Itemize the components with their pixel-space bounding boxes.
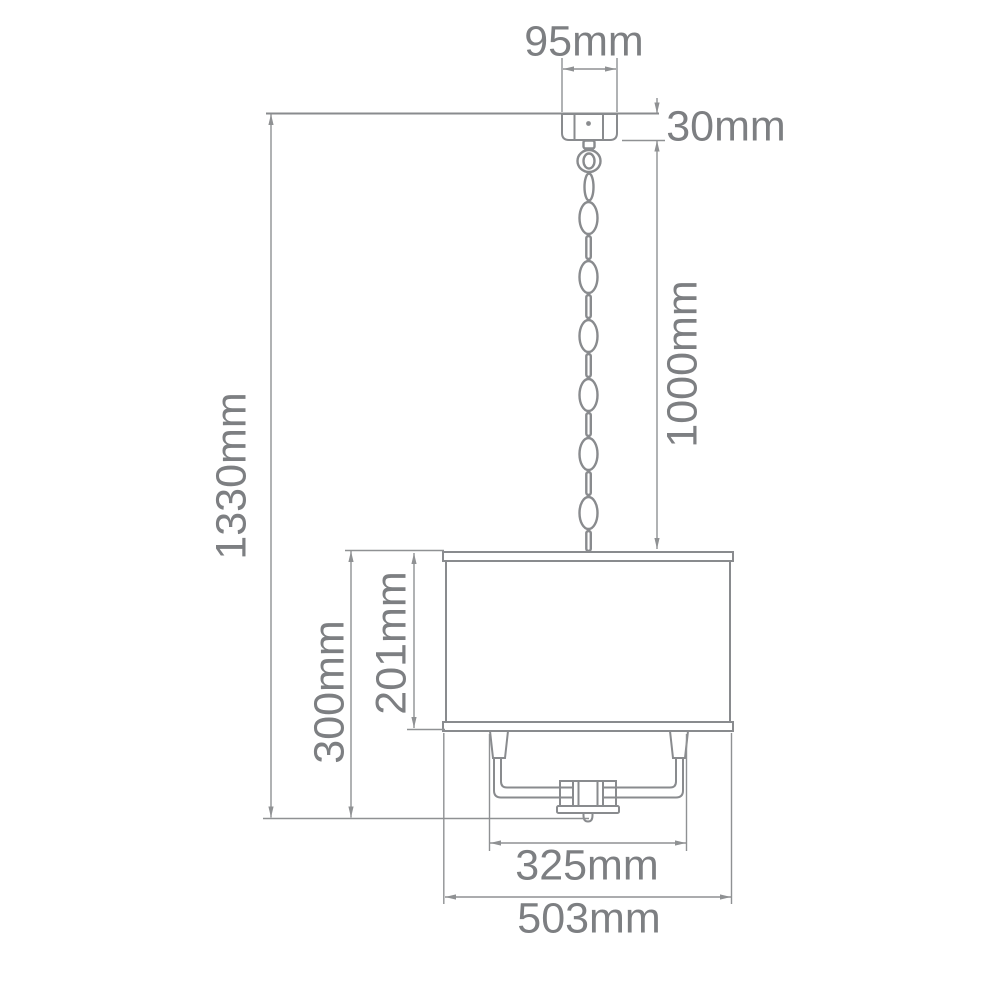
dim-label-shade-height: 201mm	[371, 571, 414, 714]
arm-left	[494, 758, 573, 798]
dimension-diagram: 95mm 30mm 1000mm 1330mm 300mm 201mm 325m…	[0, 0, 1000, 1000]
dim-label-canopy-height: 30mm	[666, 106, 785, 149]
dim-label-canopy-width: 95mm	[524, 21, 643, 64]
canopy-screw	[586, 121, 591, 126]
finial	[584, 813, 593, 822]
dim-label-chain-drop: 1000mm	[662, 280, 705, 447]
lamp-frame	[490, 731, 688, 822]
bottom-plate	[557, 806, 619, 813]
chain-link	[580, 202, 598, 234]
dim-label-overall-height: 1330mm	[211, 392, 254, 559]
drum-shade	[443, 552, 733, 731]
suspension-chain	[578, 141, 601, 552]
dim-label-frame-width: 325mm	[515, 845, 658, 888]
chain-stem	[584, 141, 595, 149]
chain-link	[580, 438, 598, 470]
shade-top-rim	[443, 552, 733, 561]
shade-body	[446, 561, 730, 722]
fixture-drawing	[0, 0, 1000, 1000]
chain-connector-top	[585, 174, 594, 201]
dimension-arrows	[268, 66, 731, 899]
chain-link	[580, 379, 598, 411]
dim-label-body-height: 300mm	[309, 620, 352, 763]
socket-left	[490, 731, 508, 758]
chain-link	[580, 497, 598, 529]
dim-label-shade-width: 503mm	[517, 898, 660, 941]
shade-bottom-rim	[443, 722, 733, 731]
chain-link	[580, 261, 598, 293]
extension-lines	[263, 58, 732, 904]
socket-right	[670, 731, 688, 758]
canopy	[562, 114, 617, 140]
chain-link	[580, 320, 598, 352]
